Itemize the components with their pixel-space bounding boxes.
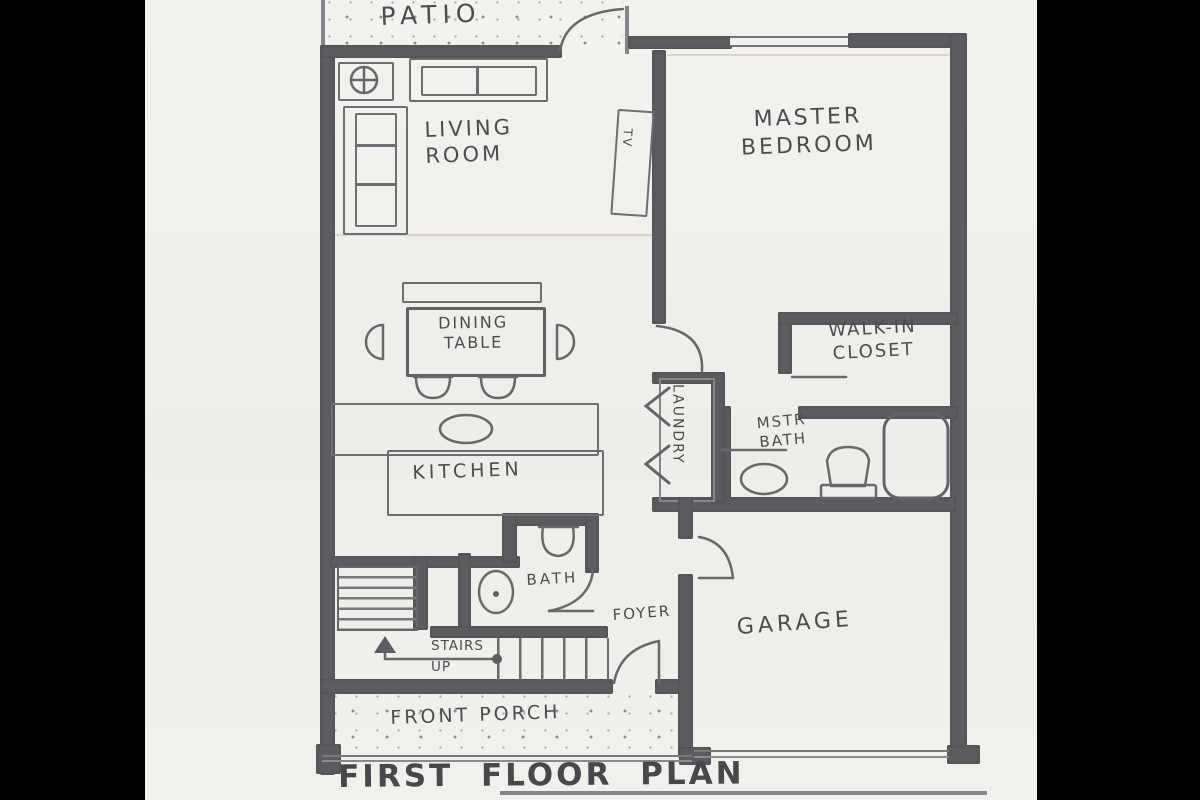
loveseat-divider: [476, 66, 479, 94]
loveseat-cushions: [421, 66, 537, 96]
wall-living-top: [320, 45, 562, 58]
wall-center-divider: [652, 50, 666, 324]
walk-in-closet-label: WALK-IN CLOSET: [796, 314, 950, 367]
plan-title: FIRST FLOOR PLAN: [338, 753, 898, 797]
wall-master-top-left: [628, 36, 732, 49]
end-table: [338, 62, 394, 101]
wall-garage-west-lower: [678, 574, 693, 758]
wall-bath-west-lower: [458, 553, 471, 631]
dining-table-label: DINING TABLE: [418, 312, 529, 354]
wall-bath-east: [585, 513, 599, 573]
wall-bath-west-upper: [502, 513, 517, 563]
tv-cabinet: [610, 109, 654, 217]
wall-master-top-right: [848, 33, 951, 48]
sofa-cushions: [355, 113, 397, 227]
master-bedroom-window: [730, 36, 850, 47]
stairs-up-label: STAIRS UP: [431, 636, 484, 678]
footing-garage-right: [947, 745, 980, 764]
laundry-label: LAUNDRY: [668, 384, 686, 496]
wall-exterior-bottom: [320, 679, 613, 694]
master-bedroom-label: MASTER BEDROOM: [700, 100, 917, 162]
sofa-divider: [355, 144, 395, 147]
construction-line: [667, 54, 949, 56]
sofa-divider: [355, 183, 395, 186]
stair-closet-shelves: [337, 566, 418, 631]
buffet: [402, 282, 542, 303]
black-matte-left: [0, 0, 145, 800]
patio-label: PATIO: [380, 0, 482, 32]
stair-treads: [497, 638, 609, 680]
kitchen-counter-island: [331, 403, 599, 456]
black-matte-right: [1037, 0, 1200, 800]
bath-label: BATH: [526, 568, 579, 589]
living-room-label: LIVING ROOM: [424, 114, 514, 170]
floor-plan-scan: PATIO LIVING ROOM MASTER BEDROOM DINING …: [0, 0, 1200, 800]
wall-garage-west-upper: [678, 497, 693, 539]
kitchen-label: KITCHEN: [412, 458, 523, 486]
wall-exterior-right: [950, 33, 967, 760]
patio-edge-line: [321, 0, 325, 47]
tv-label: TV: [619, 128, 635, 149]
